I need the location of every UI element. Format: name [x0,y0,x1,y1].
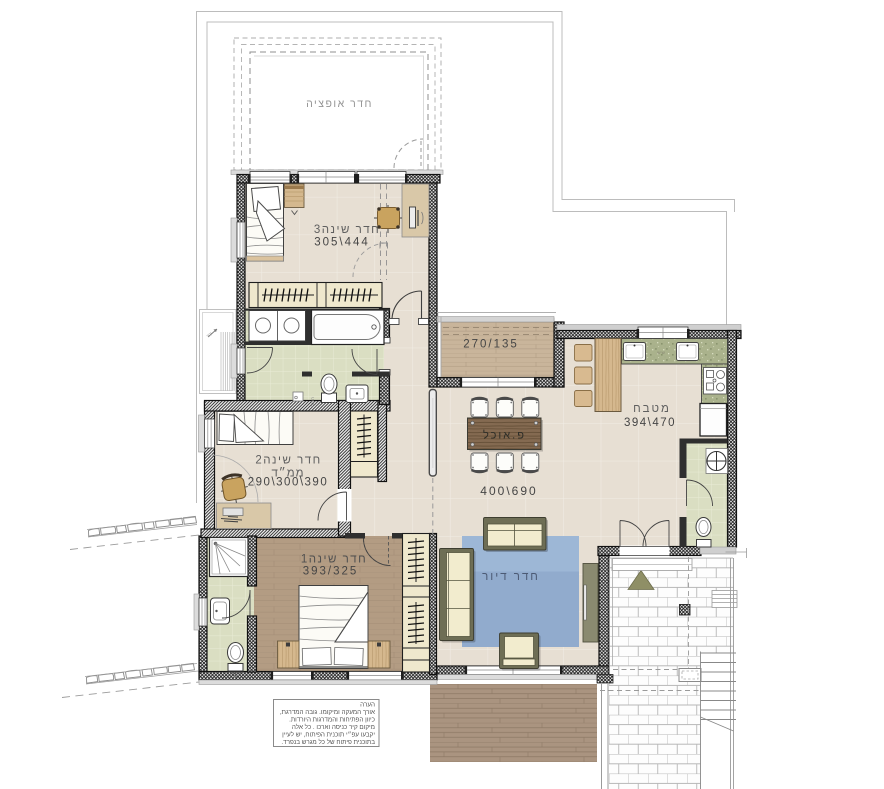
svg-text:חדר שינה2: חדר שינה2 [255,455,321,467]
svg-text:שיש: שיש [657,350,665,355]
svg-text:270/135: 270/135 [463,339,519,351]
svg-text:393/325: 393/325 [303,566,359,578]
svg-text:מיקום קיר כניסה וארכו . כל אלה: מיקום קיר כניסה וארכו . כל אלה [292,723,375,731]
svg-text:290\300\390: 290\300\390 [248,477,328,489]
svg-text:הכנה: הכנה [310,397,315,407]
svg-text:בתוכנית פיתוח של כל מגרש בנפרד: בתוכנית פיתוח של כל מגרש בנפרד. [281,738,375,746]
svg-text:פ.אוכל: פ.אוכל [483,429,526,442]
svg-text:394\470: 394\470 [624,417,676,429]
svg-text:חדר דיור: חדר דיור [482,571,540,583]
svg-text:400\690: 400\690 [480,484,537,498]
svg-text:יקבעו עפ״י תוכנית הפיתוח, יש ל: יקבעו עפ״י תוכנית הפיתוח, יש לעיין [282,731,375,739]
svg-text:מטבח: מטבח [633,403,671,415]
svg-text:כיוון הפתיחות והמדרגות היורדות: כיוון הפתיחות והמדרגות היורדות. [289,717,375,724]
svg-text:חדר אופציה: חדר אופציה [306,98,373,110]
svg-text:חדר שינה1: חדר שינה1 [301,554,367,566]
svg-text:305\444: 305\444 [314,237,370,249]
svg-text:הערה: הערה [360,702,375,709]
svg-text:אורך המעקה ומיקומו. גובה המדרג: אורך המעקה ומיקומו. גובה המדרגת, [280,709,375,716]
svg-text:חדר שינה3: חדר שינה3 [314,224,380,236]
